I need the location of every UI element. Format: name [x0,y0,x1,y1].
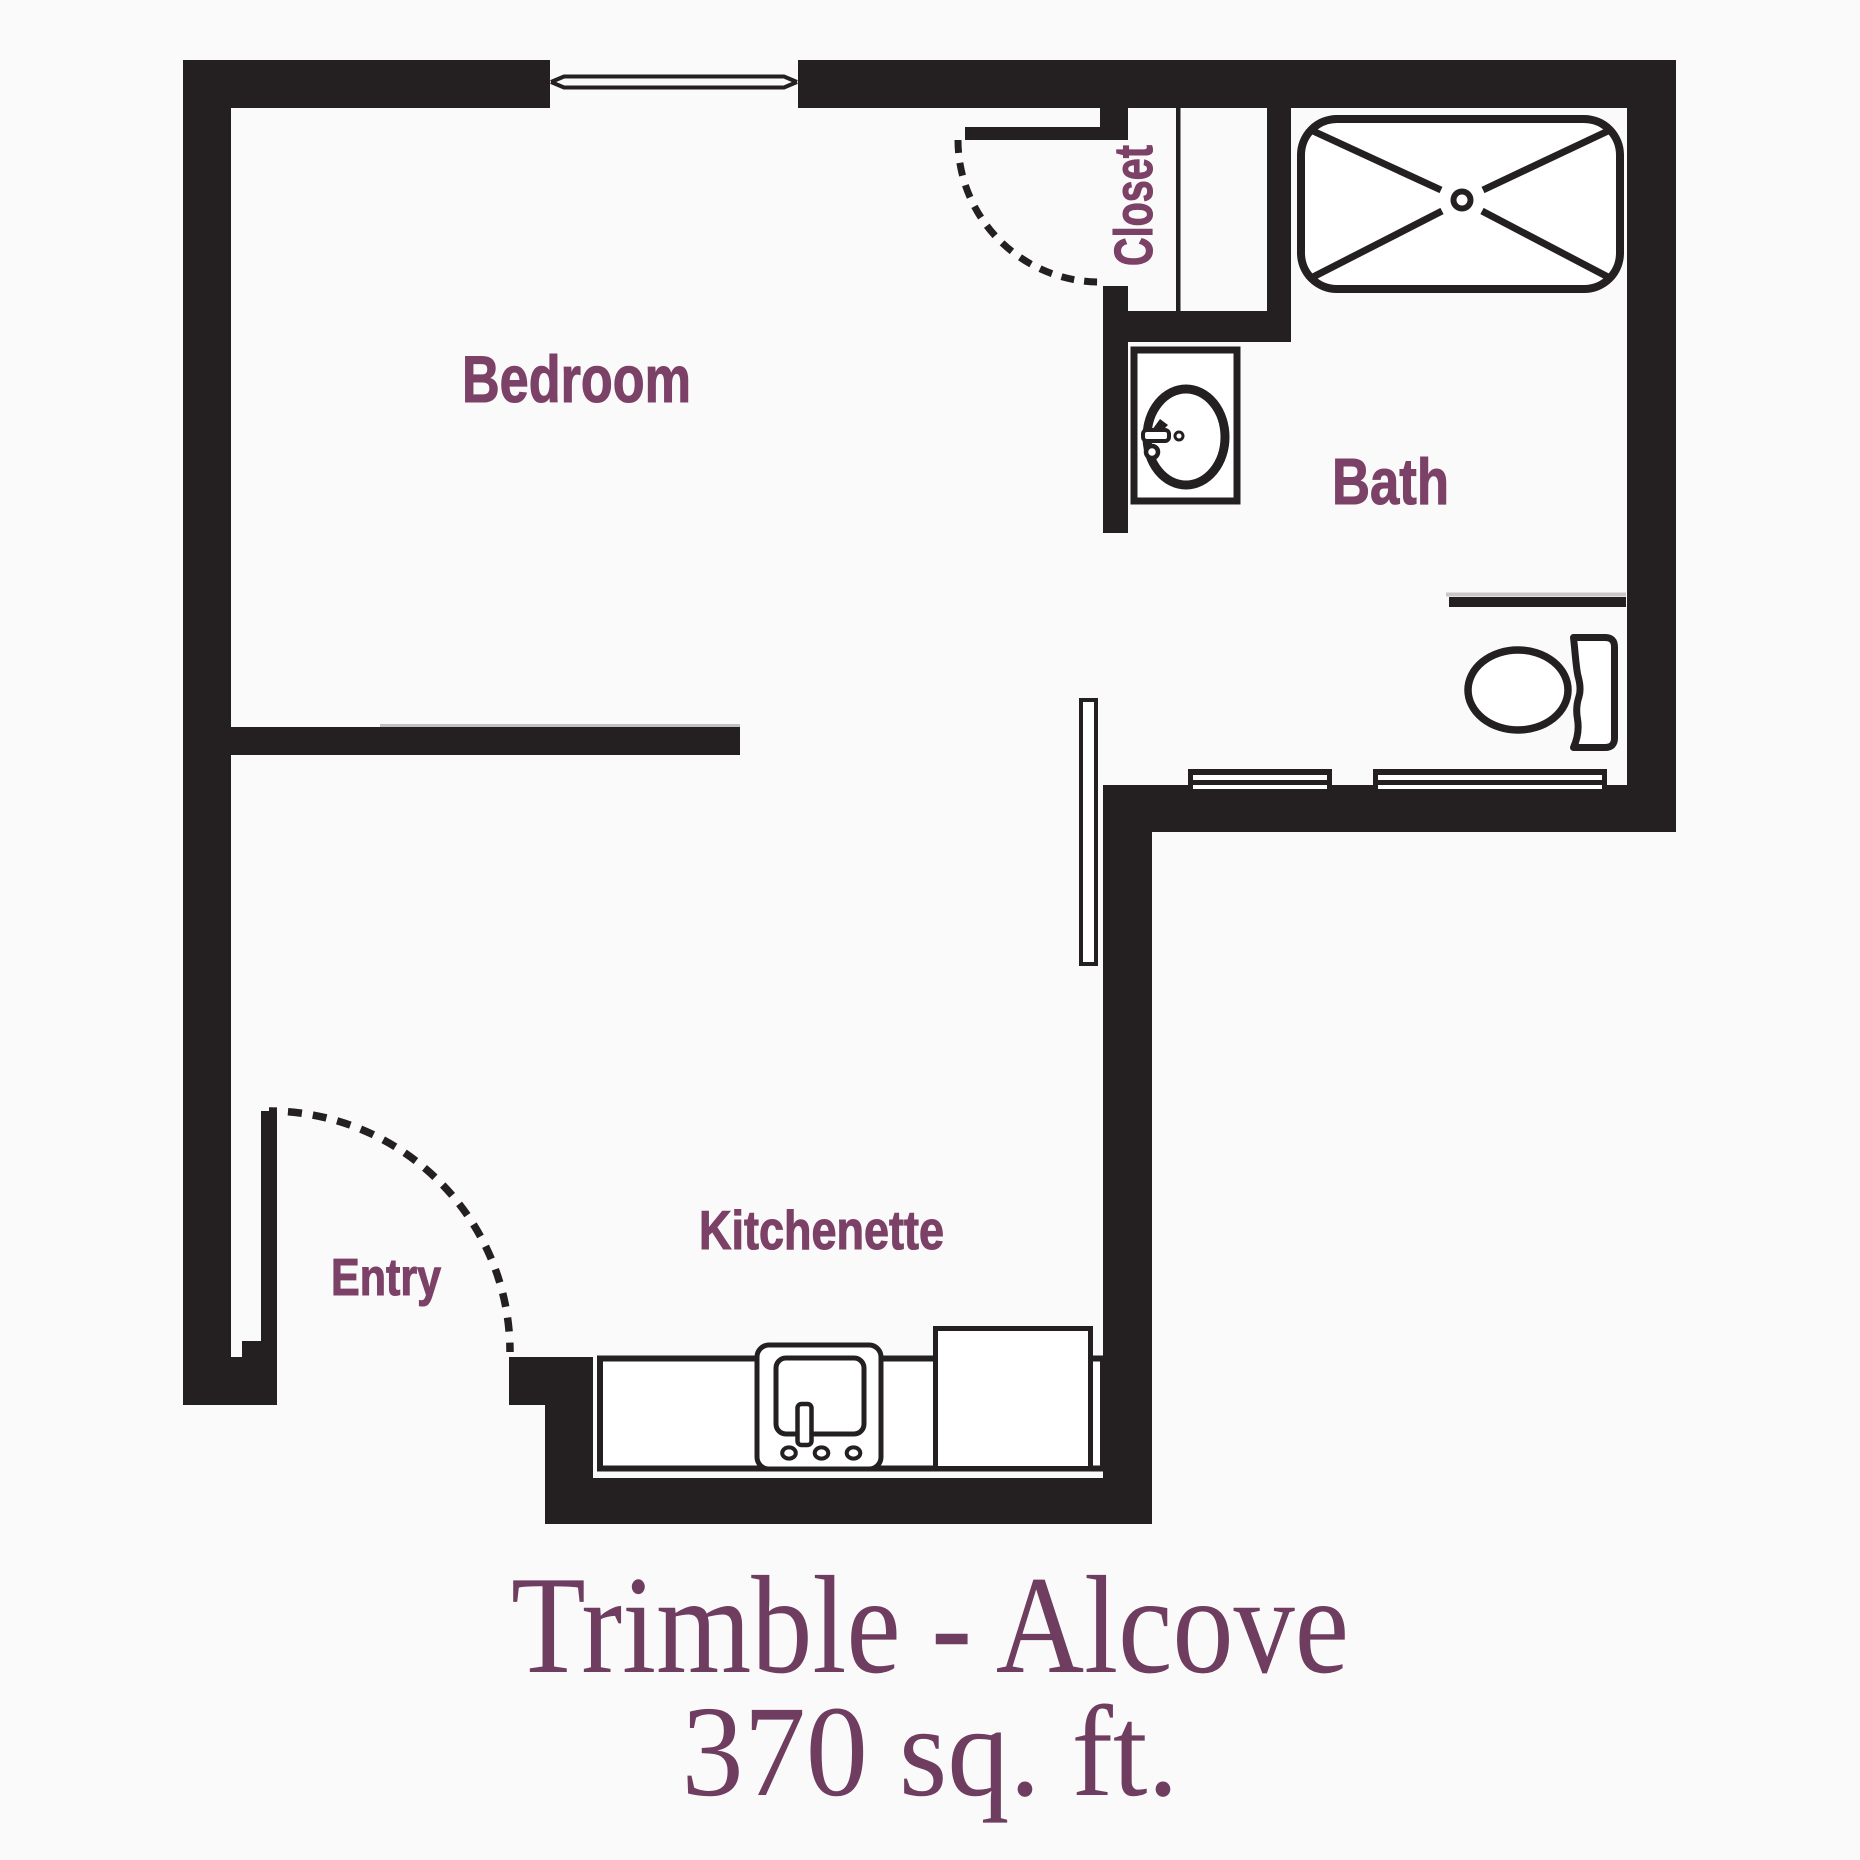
svg-text:Bath: Bath [1332,445,1449,518]
svg-text:Entry: Entry [331,1249,441,1307]
svg-text:370 sq. ft.: 370 sq. ft. [682,1680,1179,1824]
svg-text:Closet: Closet [1104,145,1164,266]
svg-text:Kitchenette: Kitchenette [699,1199,944,1261]
svg-text:Bedroom: Bedroom [462,342,691,416]
